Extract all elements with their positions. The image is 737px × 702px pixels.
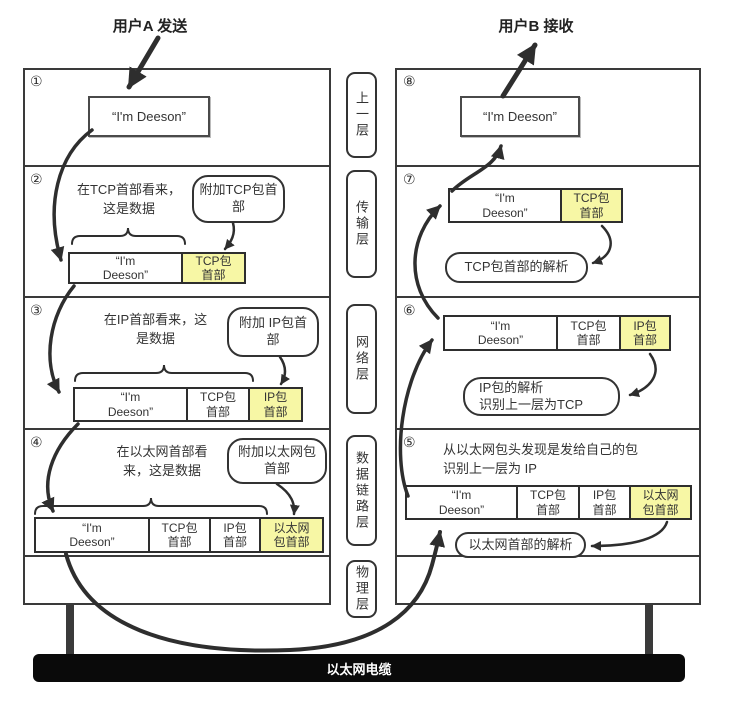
step-number: ①	[30, 73, 43, 90]
bubble-step4: 附加以太网包 首部	[227, 438, 327, 484]
ethernet-cable: 以太网电缆	[33, 654, 685, 682]
packet-cell-tcp-header: TCP包 首部	[556, 315, 621, 351]
packet-cell-tcp-header: TCP包 首部	[560, 188, 623, 223]
row-divider	[397, 165, 699, 167]
packet-cell-ip-header: IP包 首部	[619, 315, 671, 351]
row-divider	[25, 296, 329, 298]
bubble-step3: 附加 IP包首 部	[227, 307, 319, 357]
step-number: ⑧	[403, 73, 416, 90]
layer-label-upper: 上一层	[346, 72, 377, 158]
note-step2: 在TCP首部看来， 这是数据	[58, 181, 200, 219]
receiver-title: 用户B 接收	[456, 15, 616, 36]
tcpip-encapsulation-diagram: 用户A 发送 用户B 接收 ① ② ③ ④ ⑧ ⑦ ⑥ ⑤ 上一层 传输层 网络…	[0, 0, 737, 702]
row-divider	[25, 165, 329, 167]
step-number: ⑤	[403, 434, 416, 451]
layer-label-network: 网络层	[346, 304, 377, 414]
packet-cell-data: “I'm Deeson”	[68, 252, 183, 284]
row-divider	[25, 555, 329, 557]
packet-cell-data: “I'm Deeson”	[405, 485, 518, 520]
packet-step6: “I'm Deeson” TCP包 首部 IP包 首部	[443, 315, 671, 351]
packet-cell-data: “I'm Deeson”	[34, 517, 150, 553]
packet-step3: “I'm Deeson” TCP包 首部 IP包 首部	[73, 387, 303, 422]
bubble-step6: IP包的解析 识别上一层为TCP	[463, 377, 620, 416]
note-step3: 在IP首部看来，这 是数据	[78, 311, 233, 349]
packet-cell-ip-header: IP包 首部	[209, 517, 261, 553]
bubble-step2: 附加TCP包首 部	[192, 175, 285, 223]
cable-stub-left	[66, 603, 74, 655]
row-divider	[25, 428, 329, 430]
bubble-step5: 以太网首部的解析	[455, 532, 586, 558]
packet-cell-tcp-header: TCP包 首部	[186, 387, 250, 422]
step-number: ⑥	[403, 302, 416, 319]
step-number: ③	[30, 302, 43, 319]
row-divider	[397, 296, 699, 298]
packet-step2: “I'm Deeson” TCP包 首部	[68, 252, 246, 284]
row-divider	[397, 428, 699, 430]
packet-cell-tcp-header: TCP包 首部	[148, 517, 211, 553]
packet-cell-eth-header: 以太网 包首部	[629, 485, 692, 520]
step-number: ④	[30, 434, 43, 451]
cable-stub-right	[645, 603, 653, 655]
packet-cell-data: “I'm Deeson”	[73, 387, 188, 422]
packet-cell-tcp-header: TCP包 首部	[516, 485, 580, 520]
packet-cell-ip-header: IP包 首部	[578, 485, 631, 520]
message-box-step8: “I'm Deeson”	[460, 96, 580, 137]
step-number: ⑦	[403, 171, 416, 188]
note-step5: 从以太网包头发现是发给自己的包 识别上一层为 IP	[443, 441, 701, 479]
sender-title: 用户A 发送	[70, 15, 230, 36]
packet-cell-ip-header: IP包 首部	[248, 387, 303, 422]
packet-cell-tcp-header: TCP包 首部	[181, 252, 246, 284]
packet-cell-eth-header: 以太网 包首部	[259, 517, 324, 553]
packet-step7: “I'm Deeson” TCP包 首部	[448, 188, 623, 223]
bubble-step7: TCP包首部的解析	[445, 252, 588, 283]
packet-cell-data: “I'm Deeson”	[448, 188, 562, 223]
packet-cell-data: “I'm Deeson”	[443, 315, 558, 351]
message-box-step1: “I'm Deeson”	[88, 96, 210, 137]
packet-step4: “I'm Deeson” TCP包 首部 IP包 首部 以太网 包首部	[34, 517, 324, 553]
note-step4: 在以太网首部看 来，这是数据	[88, 443, 236, 481]
layer-label-transport: 传输层	[346, 170, 377, 278]
layer-label-physical: 物理层	[346, 560, 377, 618]
layer-label-datalink: 数据链路层	[346, 435, 377, 546]
packet-step5: “I'm Deeson” TCP包 首部 IP包 首部 以太网 包首部	[405, 485, 692, 520]
step-number: ②	[30, 171, 43, 188]
